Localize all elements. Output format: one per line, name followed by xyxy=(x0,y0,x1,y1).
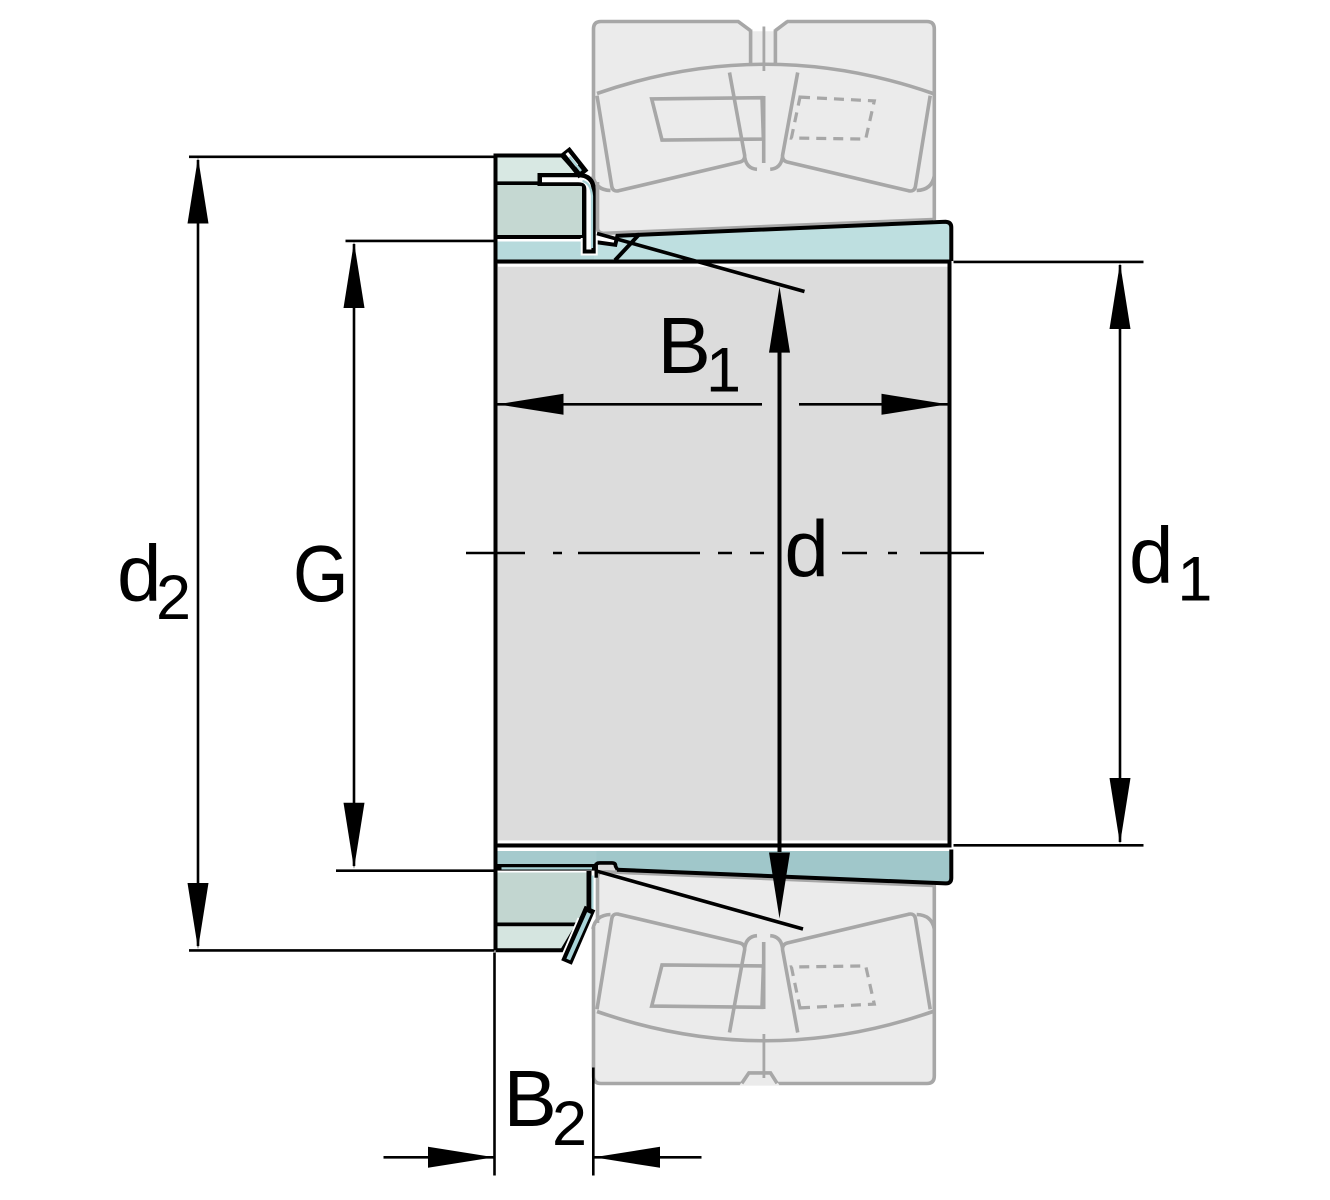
svg-text:B: B xyxy=(658,301,711,390)
svg-text:1: 1 xyxy=(1177,545,1212,615)
svg-text:d: d xyxy=(117,529,162,618)
svg-text:B: B xyxy=(504,1054,557,1143)
svg-text:2: 2 xyxy=(552,1089,587,1159)
svg-text:2: 2 xyxy=(156,563,191,633)
svg-text:G: G xyxy=(293,529,349,618)
svg-text:d: d xyxy=(1129,511,1174,600)
svg-text:1: 1 xyxy=(706,336,741,406)
svg-text:d: d xyxy=(784,505,829,594)
